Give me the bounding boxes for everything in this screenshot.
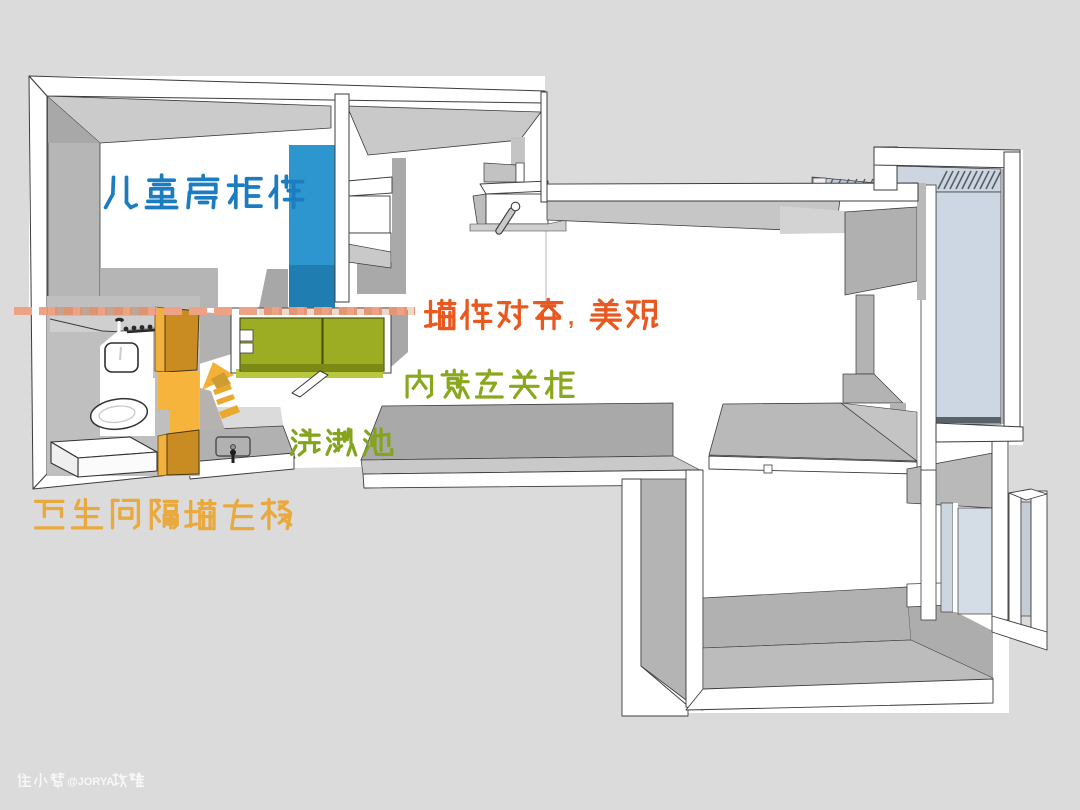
svg-text:,: ,: [568, 304, 574, 329]
svg-text:@JORYA: @JORYA: [67, 776, 114, 788]
